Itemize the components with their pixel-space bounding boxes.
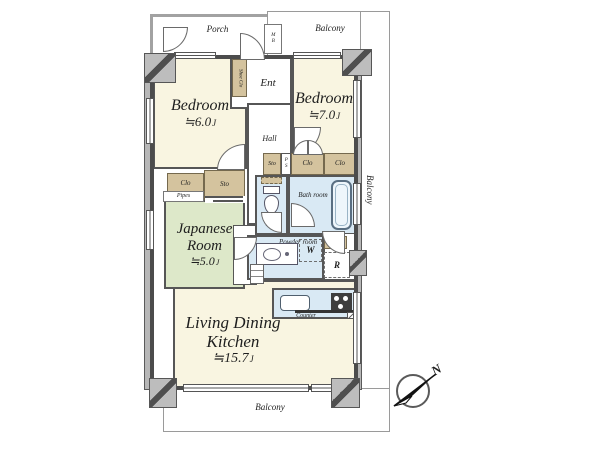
balcony-bottom-label: Balcony: [240, 402, 300, 412]
balcony-right-label: Balcony: [365, 160, 375, 220]
pillar-top-left: [144, 53, 176, 83]
window-bath: [353, 183, 361, 225]
building-outline: [150, 55, 358, 390]
window-bedroom-b-top: [293, 52, 341, 59]
porch-label: Porch: [195, 24, 240, 34]
pillar-bottom-left: [149, 378, 177, 408]
window-ldk-right: [353, 292, 361, 364]
window-ldk-bottom-2: [311, 384, 333, 392]
pillar-mid-right: [349, 250, 367, 276]
window-bedroom-a-left: [146, 98, 154, 144]
window-bedroom-a: [174, 52, 216, 59]
pillar-top-right: [342, 49, 372, 76]
meter-box: MB: [264, 24, 282, 54]
floor-plan: Japanese Room ≒5.0J Bedroom ≒6.0J Ent Be…: [0, 0, 600, 450]
window-bedroom-b-right: [353, 80, 361, 138]
porch-door-arc: [163, 27, 188, 52]
compass: N: [390, 363, 448, 411]
porch-wall-top: [150, 14, 267, 17]
window-ldk-bottom: [183, 384, 309, 392]
balcony-top-label: Balcony: [300, 23, 360, 33]
japanese-sliding-door: [205, 196, 245, 203]
pillar-bottom-right: [331, 378, 360, 408]
front-door-arc: [240, 33, 265, 60]
window-japanese-left: [146, 210, 154, 250]
porch-wall-left: [150, 14, 153, 56]
